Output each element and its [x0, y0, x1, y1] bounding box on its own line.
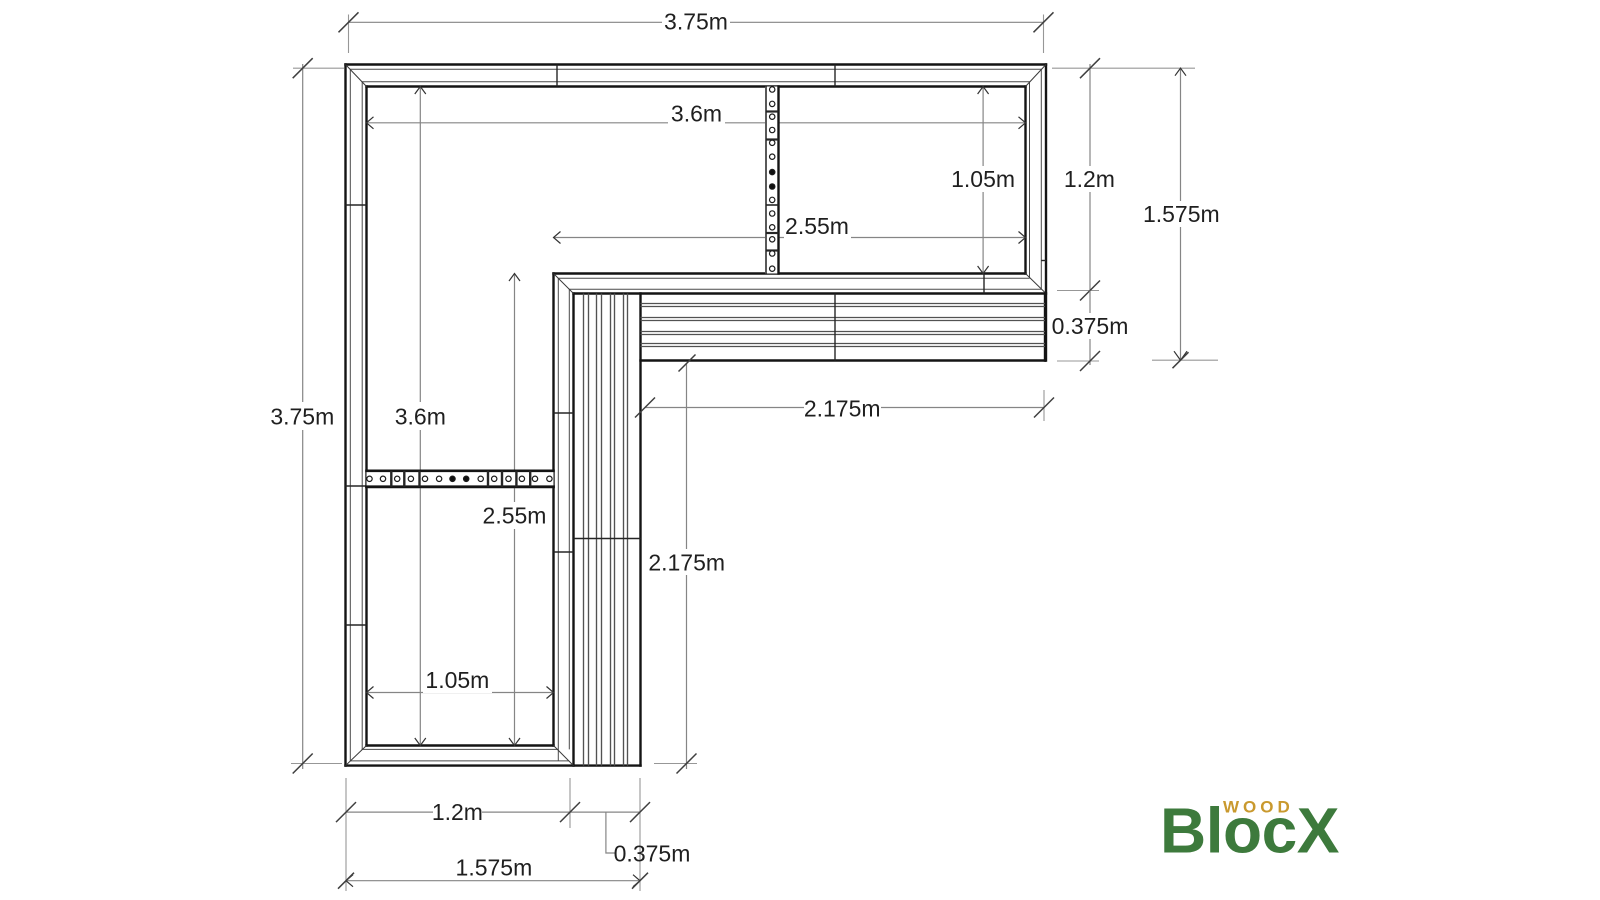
svg-text:1.2m: 1.2m: [432, 799, 483, 825]
svg-text:2.175m: 2.175m: [648, 550, 725, 576]
svg-text:3.6m: 3.6m: [671, 101, 722, 127]
svg-text:0.375m: 0.375m: [1052, 313, 1129, 339]
svg-text:1.575m: 1.575m: [1143, 201, 1220, 227]
svg-text:1.05m: 1.05m: [425, 667, 489, 693]
svg-text:1.2m: 1.2m: [1064, 166, 1115, 192]
svg-text:1.05m: 1.05m: [951, 166, 1015, 192]
svg-text:3.75m: 3.75m: [270, 404, 334, 430]
svg-text:1.575m: 1.575m: [456, 855, 533, 881]
svg-text:2.55m: 2.55m: [483, 503, 547, 529]
svg-text:2.55m: 2.55m: [785, 213, 849, 239]
svg-text:BlocX: BlocX: [1160, 795, 1340, 867]
svg-text:3.75m: 3.75m: [664, 9, 728, 35]
svg-text:2.175m: 2.175m: [804, 396, 881, 422]
svg-text:3.6m: 3.6m: [395, 404, 446, 430]
svg-text:0.375m: 0.375m: [614, 841, 691, 867]
